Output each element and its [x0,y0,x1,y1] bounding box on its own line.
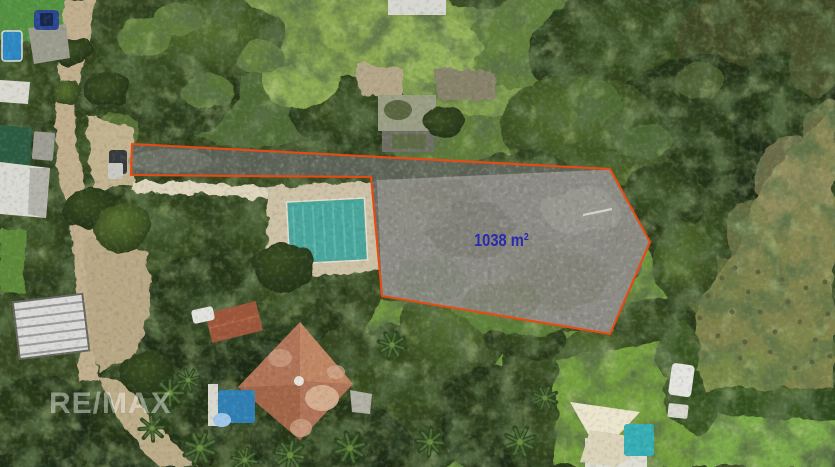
svg-text:RE/MAX: RE/MAX [49,387,172,420]
svg-text:1038 m2: 1038 m2 [474,231,529,250]
